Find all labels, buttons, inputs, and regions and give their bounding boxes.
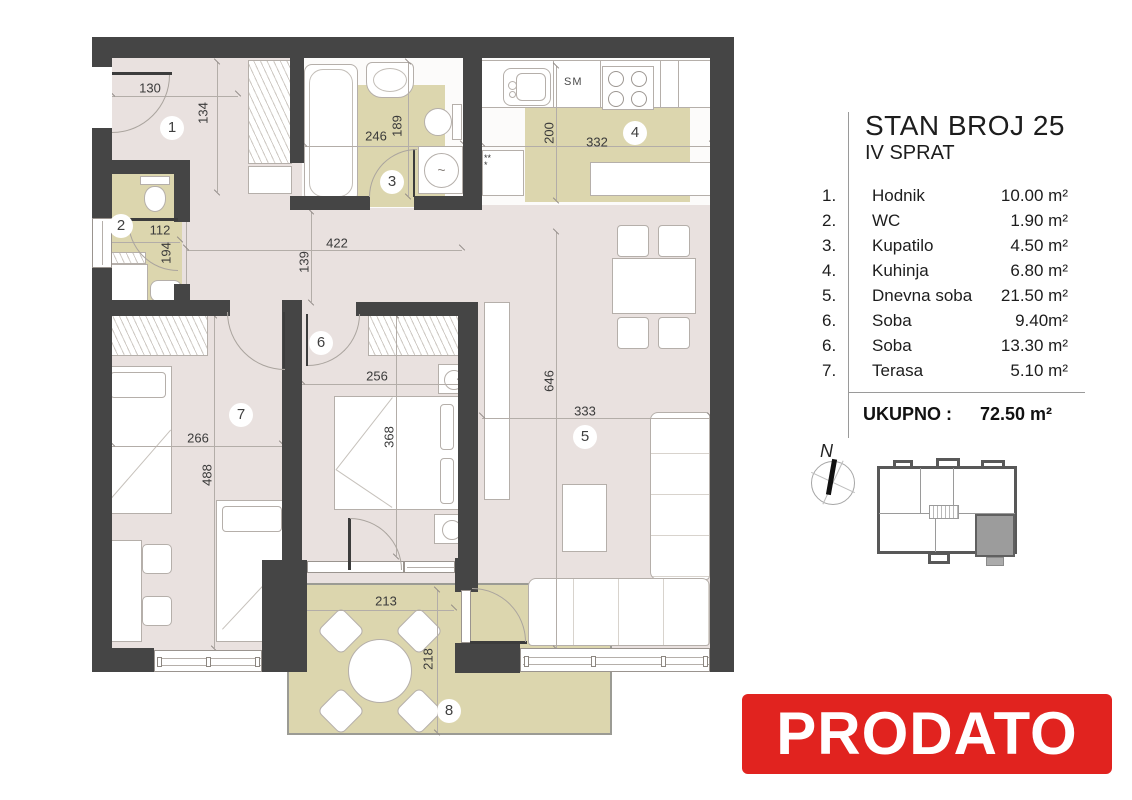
room-name: Soba [872, 308, 1015, 333]
room-number-5: 5 [573, 425, 597, 449]
pillow [440, 458, 454, 504]
tv-sideboard [484, 302, 510, 500]
wall-bath-bottom [414, 196, 463, 210]
bedroom7-wardrobe [104, 314, 208, 356]
bath-sink [366, 62, 414, 98]
floorplan-page: ~ SM *** [0, 0, 1132, 800]
dim-line [112, 446, 282, 447]
dim-label: 246 [365, 129, 387, 144]
room-name: Hodnik [872, 183, 1001, 208]
room-name: Kuhinja [872, 258, 1010, 283]
room-num: 6. [822, 308, 872, 333]
coffee-table [562, 484, 607, 552]
sofa-right-arm [650, 412, 710, 580]
entry-door-opening [92, 67, 112, 128]
dim-label: 139 [297, 251, 312, 273]
room-list-row: 2. WC 1.90 m² [822, 208, 1068, 233]
terrace-table [348, 639, 412, 703]
stove [602, 66, 654, 110]
wall-top [92, 37, 734, 58]
wall-pillar [455, 643, 520, 673]
wall-bath-bottom [290, 196, 370, 210]
vent-symbol: *** [484, 155, 491, 169]
dim-line [556, 232, 557, 648]
kitchen-island [590, 162, 712, 196]
dim-line [482, 418, 710, 419]
room-number-2: 2 [109, 214, 133, 238]
terrace-door-frame [461, 590, 471, 643]
room-area: 9.40m² [1015, 308, 1068, 333]
room-num: 6. [822, 333, 872, 358]
dim-label: 488 [200, 464, 215, 486]
legend-horizontal-rule [848, 392, 1085, 393]
dim-line [292, 610, 454, 611]
room-num: 2. [822, 208, 872, 233]
bedroom6-wardrobe [368, 314, 462, 356]
floor-subtitle: IV SPRAT [865, 142, 955, 165]
room-list-row: 5. Dnevna soba 21.50 m² [822, 283, 1068, 308]
room-area: 6.80 m² [1010, 258, 1068, 283]
counter-divider [600, 61, 601, 107]
room-num: 3. [822, 233, 872, 258]
bath-toilet-bowl [424, 108, 452, 136]
keyplan-terrace-tab [986, 557, 1004, 566]
wall-pillar [262, 560, 307, 672]
room-list: 1. Hodnik 10.00 m² 2. WC 1.90 m² 3. Kupa… [822, 183, 1068, 383]
dim-label: 266 [187, 431, 209, 446]
room-number-4: 4 [623, 121, 647, 145]
keyplan-stairs [929, 505, 959, 519]
hall-cabinet [248, 166, 292, 194]
room-num: 5. [822, 283, 872, 308]
wc-toilet-tank [140, 176, 170, 185]
wall-left [92, 268, 112, 652]
room-name: Kupatilo [872, 233, 1010, 258]
room-name: WC [872, 208, 1010, 233]
room-number-7: 7 [229, 403, 253, 427]
room-area: 1.90 m² [1010, 208, 1068, 233]
dim-label: 200 [542, 122, 557, 144]
counter-divider [660, 61, 661, 107]
wall-bottom [92, 648, 154, 672]
room6-balcony-window [404, 561, 455, 573]
dim-label: 134 [196, 102, 211, 124]
counter-divider [553, 61, 554, 107]
room-name: Dnevna soba [872, 283, 1001, 308]
dining-table [612, 258, 696, 314]
room-area: 5.10 m² [1010, 358, 1068, 383]
counter-divider [678, 61, 679, 107]
wall-wc-right [174, 160, 190, 222]
bath-toilet-tank [452, 104, 462, 140]
room-area: 13.30 m² [1001, 333, 1068, 358]
pillow [222, 506, 282, 532]
dining-chair [658, 225, 690, 257]
dim-label: 332 [586, 135, 608, 150]
room-list-row: 6. Soba 9.40m² [822, 308, 1068, 333]
building-key-plan [873, 455, 1025, 573]
washing-machine-label: SM [564, 76, 583, 88]
hall-wardrobe [248, 60, 292, 164]
kitchen-sink [503, 68, 551, 106]
wall-left [92, 37, 112, 67]
dim-label: 422 [326, 236, 348, 251]
dim-label: 194 [159, 242, 174, 264]
dim-label: 189 [390, 115, 405, 137]
room-num: 1. [822, 183, 872, 208]
boiler-unit: ~ [418, 146, 463, 194]
room-name: Soba [872, 333, 1001, 358]
room-number-6: 6 [309, 331, 333, 355]
floorplan-drawing: ~ SM *** [0, 0, 760, 800]
room-area: 21.50 m² [1001, 283, 1068, 308]
apartment-title: STAN BROJ 25 [865, 110, 1065, 142]
wall-pillar [455, 558, 478, 592]
room-name: Terasa [872, 358, 1010, 383]
room-area: 4.50 m² [1010, 233, 1068, 258]
dim-label: 213 [375, 594, 397, 609]
wall-corridor [92, 300, 230, 316]
living-window [520, 648, 710, 672]
sold-banner: PRODATO [742, 694, 1112, 774]
dim-label: 368 [382, 426, 397, 448]
room-list-row: 3. Kupatilo 4.50 m² [822, 233, 1068, 258]
dim-line [304, 146, 463, 147]
keyplan-wall [920, 468, 921, 513]
room-number-3: 3 [380, 170, 404, 194]
keyplan-highlighted-unit [975, 514, 1015, 557]
dining-chair [617, 225, 649, 257]
dim-label: 333 [574, 404, 596, 419]
dim-label: 112 [150, 223, 171, 238]
desk-chair [142, 596, 172, 626]
room-number-1: 1 [160, 116, 184, 140]
bathtub [304, 64, 358, 202]
wall-right [710, 37, 734, 672]
room-area: 10.00 m² [1001, 183, 1068, 208]
wall-room6-living [458, 302, 478, 558]
room-num: 4. [822, 258, 872, 283]
desk-chair [142, 544, 172, 574]
dining-chair [658, 317, 690, 349]
room-list-row: 4. Kuhinja 6.80 m² [822, 258, 1068, 283]
wall-room7-room6 [282, 300, 302, 560]
room-list-row: 7. Terasa 5.10 m² [822, 358, 1068, 383]
wall-room6-top [356, 302, 462, 316]
wall-bath-kitchen [463, 58, 482, 210]
dim-label: 256 [366, 369, 388, 384]
dining-chair [617, 317, 649, 349]
room-list-row: 1. Hodnik 10.00 m² [822, 183, 1068, 208]
wc-toilet-bowl [144, 186, 166, 212]
pillow [440, 404, 454, 450]
total-value: 72.50 m² [980, 404, 1052, 425]
total-row: UKUPNO : 72.50 m² [822, 404, 1062, 425]
room-number-8: 8 [437, 699, 461, 723]
dim-label: 130 [139, 81, 161, 96]
dim-line [302, 384, 460, 385]
dim-line [217, 62, 218, 192]
dim-line [186, 250, 462, 251]
pillow [110, 372, 166, 398]
room-num: 7. [822, 358, 872, 383]
dim-label: 218 [421, 648, 436, 670]
total-label: UKUPNO : [863, 404, 952, 425]
room7-window [154, 650, 262, 672]
dim-label: 646 [542, 370, 557, 392]
wall-hall-bath [290, 58, 304, 163]
room-list-row: 6. Soba 13.30 m² [822, 333, 1068, 358]
